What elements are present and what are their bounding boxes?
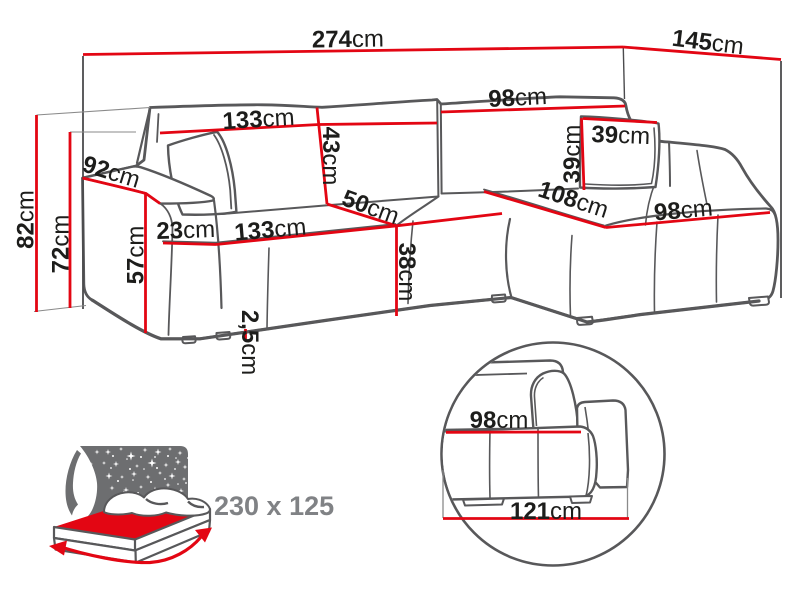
svg-text:72cm: 72cm: [48, 215, 75, 274]
svg-text:274cm: 274cm: [312, 25, 384, 53]
svg-text:82cm: 82cm: [13, 190, 40, 249]
svg-text:57cm: 57cm: [123, 226, 150, 285]
svg-text:230 x 125: 230 x 125: [214, 491, 334, 521]
svg-text:98cm: 98cm: [653, 195, 714, 227]
svg-text:121cm: 121cm: [510, 498, 582, 525]
svg-text:2,5cm: 2,5cm: [236, 310, 263, 375]
svg-text:23cm: 23cm: [156, 216, 216, 245]
svg-text:133cm: 133cm: [222, 104, 296, 135]
svg-text:39cm: 39cm: [591, 121, 651, 150]
svg-text:38cm: 38cm: [393, 243, 420, 302]
svg-text:43cm: 43cm: [317, 127, 344, 186]
svg-text:98cm: 98cm: [470, 407, 529, 434]
svg-text:98cm: 98cm: [488, 83, 548, 113]
svg-text:39cm: 39cm: [559, 125, 586, 184]
